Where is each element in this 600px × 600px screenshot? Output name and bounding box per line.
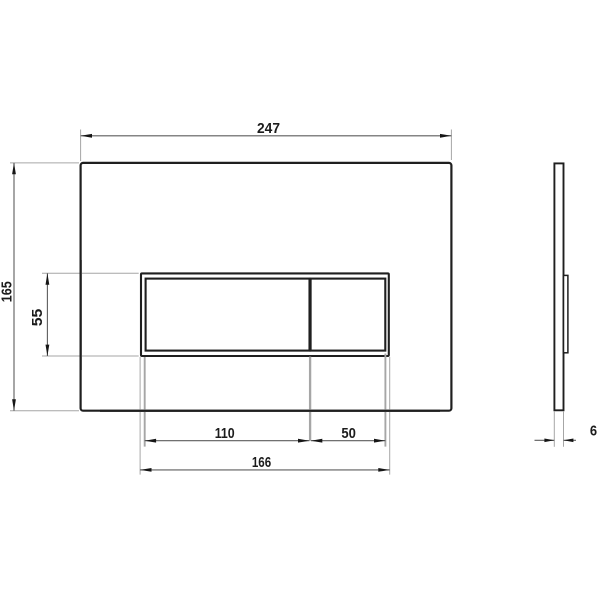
- svg-text:55: 55: [30, 309, 46, 327]
- svg-text:247: 247: [257, 121, 280, 137]
- svg-text:165: 165: [0, 281, 16, 302]
- svg-text:166: 166: [252, 455, 271, 471]
- svg-text:6: 6: [590, 424, 597, 440]
- svg-text:50: 50: [341, 426, 356, 442]
- svg-text:110: 110: [215, 426, 235, 442]
